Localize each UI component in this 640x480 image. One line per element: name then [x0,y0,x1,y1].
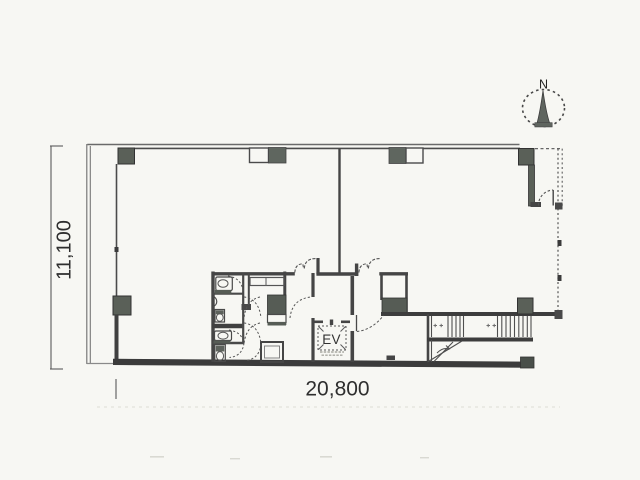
svg-text:N: N [539,78,548,92]
svg-text:20,800: 20,800 [305,378,369,401]
svg-text:11,100: 11,100 [53,220,75,280]
svg-text:EV: EV [322,332,341,347]
